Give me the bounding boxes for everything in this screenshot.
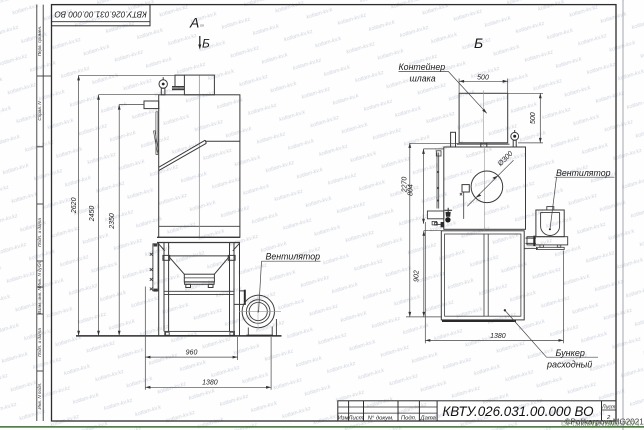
svg-text:Подп. и дата: Подп. и дата [37,328,42,357]
svg-text:2620: 2620 [71,197,78,214]
svg-text:Б: Б [202,37,210,51]
svg-text:Инв. N дубл.: Инв. N дубл. [37,261,42,288]
svg-text:N° докум.: N° докум. [368,415,394,421]
svg-text:Бункер: Бункер [556,348,585,358]
svg-text:960: 960 [186,350,198,357]
svg-text:Контейнер: Контейнер [399,62,446,72]
svg-text:1380: 1380 [202,380,218,387]
svg-text:Лист: Лист [347,415,363,421]
svg-text:Дата: Дата [419,415,436,421]
svg-text:Вентилятор: Вентилятор [556,168,611,178]
svg-text:Инв. N подл.: Инв. N подл. [37,383,42,410]
svg-text:го: го [200,24,204,28]
svg-text:расходный: расходный [546,359,592,369]
svg-text:2450: 2450 [89,206,96,223]
svg-text:шлака: шлака [410,74,436,84]
svg-text:2350: 2350 [109,213,116,230]
svg-text:Изм: Изм [338,415,349,421]
svg-text:804: 804 [408,184,415,196]
svg-text:500: 500 [477,75,489,82]
svg-text:Подп.: Подп. [401,415,417,421]
svg-text:А: А [189,15,199,31]
svg-text:Лист: Лист [601,404,616,410]
svg-text:Справ. N: Справ. N [37,101,42,121]
svg-text:Взам. инв. N: Взам. инв. N [37,286,42,313]
svg-text:КВТУ.026.031.00.000 ВО: КВТУ.026.031.00.000 ВО [54,9,147,18]
svg-text:1380: 1380 [490,333,506,340]
svg-text:Б: Б [474,35,483,51]
svg-text:Вентилятор: Вентилятор [266,251,321,261]
svg-text:Перв. примен.: Перв. примен. [37,26,42,57]
svg-text:©PolikarpovaMG2021: ©PolikarpovaMG2021 [565,417,644,426]
svg-text:Подп. и дата: Подп. и дата [37,218,42,247]
svg-text:902: 902 [413,270,420,282]
svg-text:500: 500 [530,112,537,124]
